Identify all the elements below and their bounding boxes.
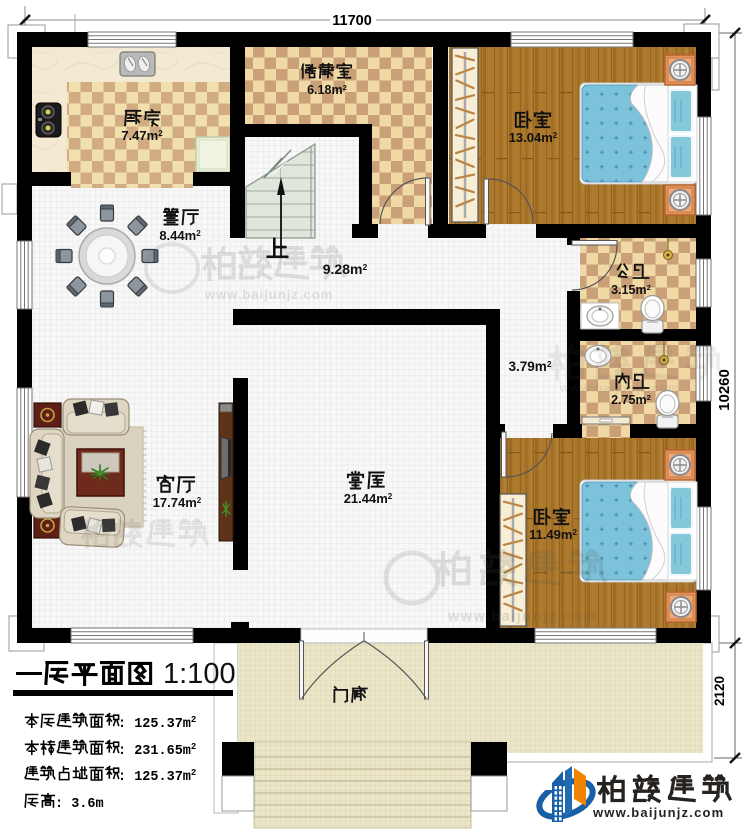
svg-text:www.baijunjz.com: www.baijunjz.com <box>592 805 724 820</box>
svg-text:3.79m2: 3.79m2 <box>509 359 552 374</box>
svg-text:www.baijunjz.com: www.baijunjz.com <box>204 287 333 302</box>
svg-text:21.44m2: 21.44m2 <box>344 491 393 506</box>
svg-text:9.28m2: 9.28m2 <box>323 261 368 277</box>
svg-text:6.18m2: 6.18m2 <box>307 83 347 97</box>
svg-text:: 3.6m: : 3.6m <box>55 797 104 812</box>
svg-text:7.47m2: 7.47m2 <box>121 128 163 143</box>
svg-text:: 125.37m2: : 125.37m2 <box>118 768 196 785</box>
svg-text:17.74m2: 17.74m2 <box>153 495 202 510</box>
svg-text:8.44m2: 8.44m2 <box>159 228 201 243</box>
svg-text:1:100: 1:100 <box>163 658 236 690</box>
svg-text:13.04m2: 13.04m2 <box>509 130 558 145</box>
svg-text:2120: 2120 <box>712 676 727 706</box>
svg-text:11.49m2: 11.49m2 <box>529 527 577 542</box>
svg-text:www.baijunjz.com: www.baijunjz.com <box>447 609 597 625</box>
svg-text:2.75m2: 2.75m2 <box>611 393 651 407</box>
svg-text:: 231.65m2: : 231.65m2 <box>118 742 196 759</box>
svg-text:3.15m2: 3.15m2 <box>611 283 651 297</box>
svg-text:11700: 11700 <box>332 13 372 29</box>
svg-text:: 125.37m2: : 125.37m2 <box>118 715 196 732</box>
svg-text:10260: 10260 <box>716 369 733 411</box>
